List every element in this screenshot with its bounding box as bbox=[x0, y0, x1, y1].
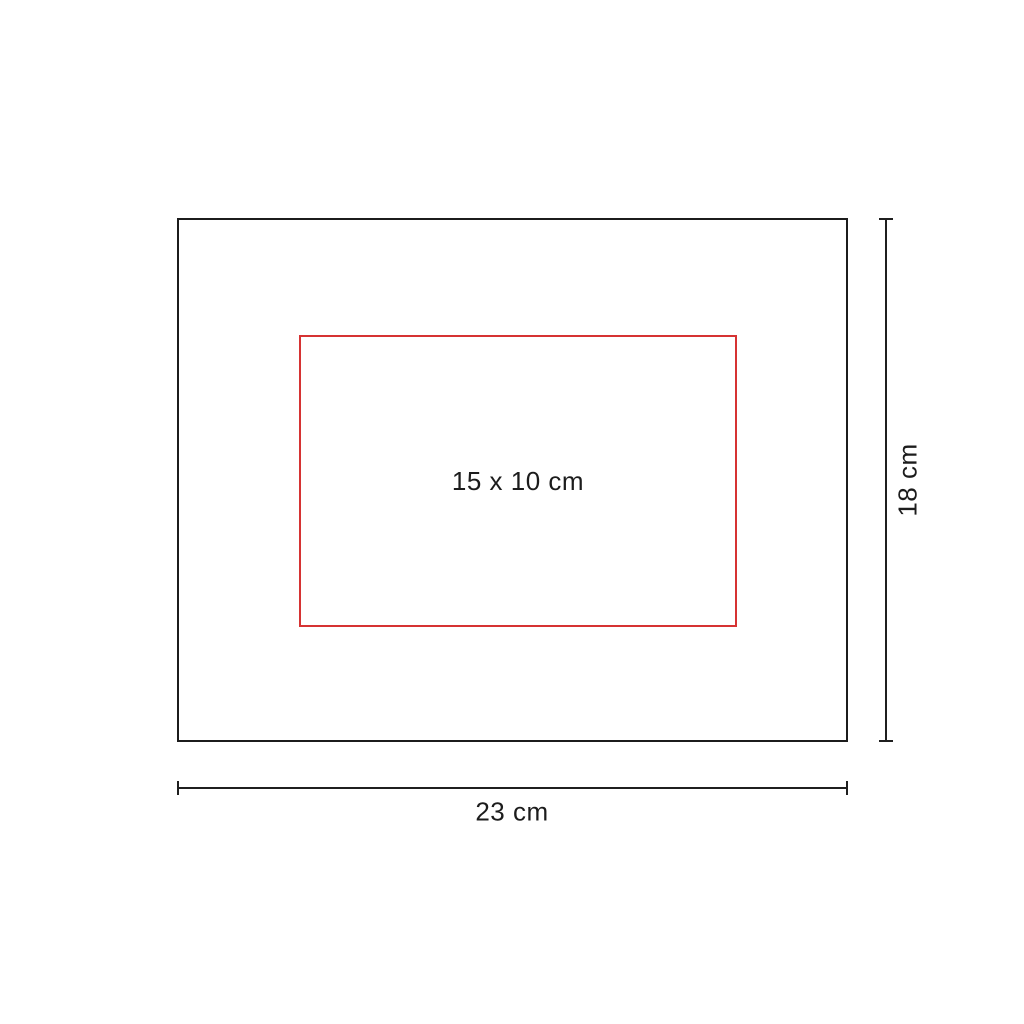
height-dimension-cap-top bbox=[879, 218, 893, 220]
print-area-rect: 15 x 10 cm bbox=[299, 335, 737, 627]
height-dimension-cap-bottom bbox=[879, 740, 893, 742]
width-dimension-line bbox=[177, 787, 848, 789]
height-dimension-line bbox=[885, 218, 887, 742]
width-dimension-cap-right bbox=[846, 781, 848, 795]
dimension-diagram: 15 x 10 cm 18 cm 23 cm bbox=[0, 0, 1024, 1024]
width-dimension-cap-left bbox=[177, 781, 179, 795]
height-dimension-label: 18 cm bbox=[893, 443, 924, 516]
width-dimension-label: 23 cm bbox=[475, 797, 548, 828]
print-area-label: 15 x 10 cm bbox=[452, 466, 584, 497]
